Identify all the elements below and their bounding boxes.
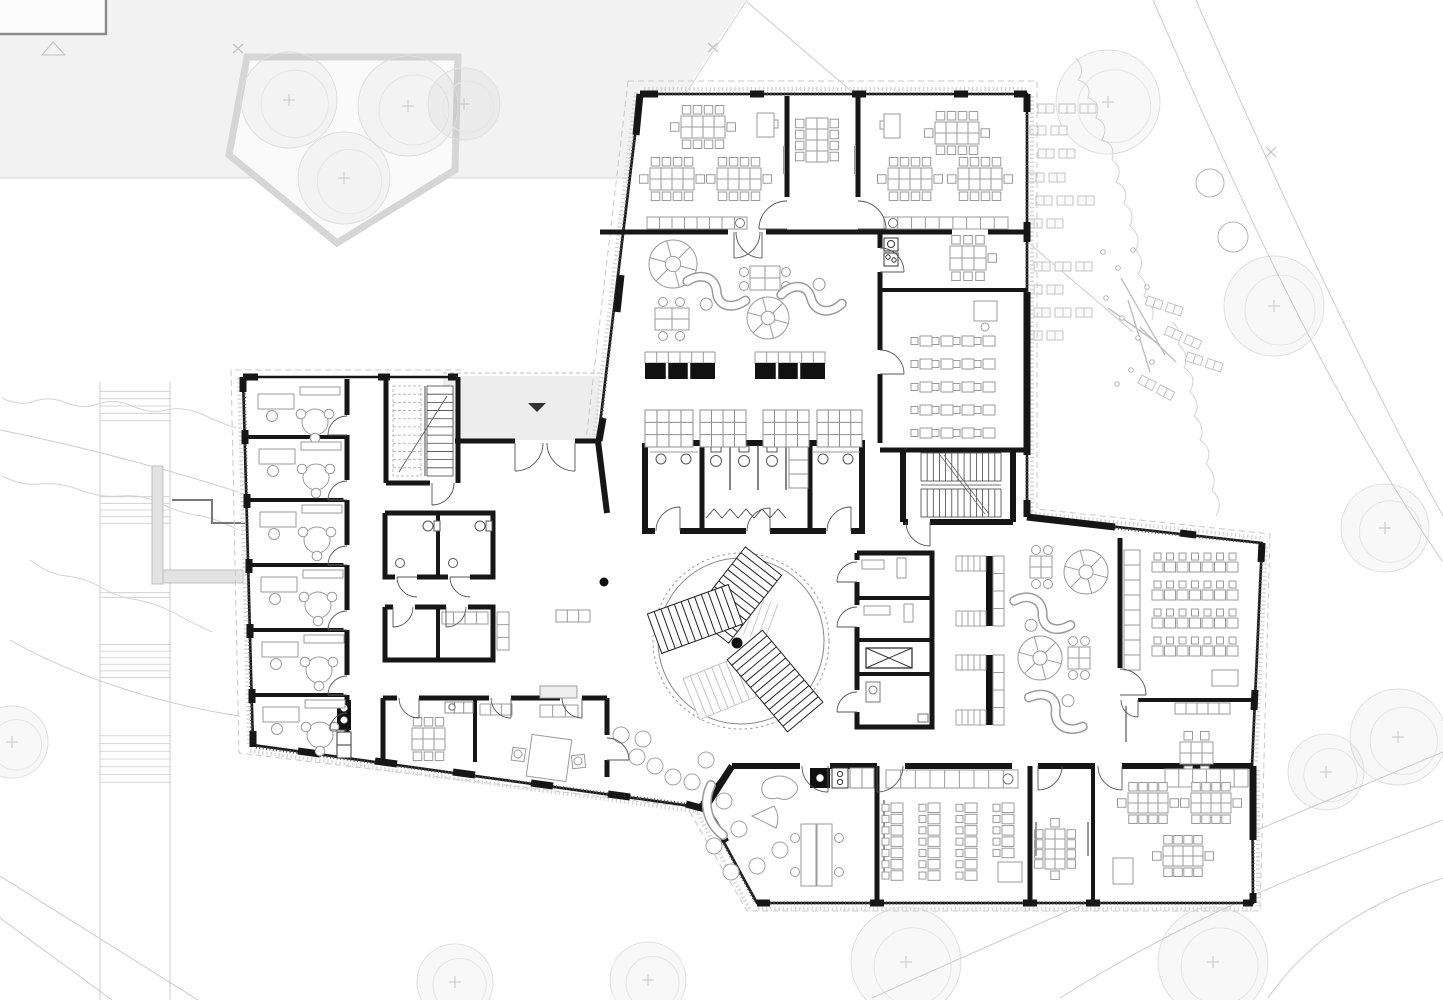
furniture-circ (1032, 580, 1041, 589)
kitchen-unit (337, 732, 351, 758)
furniture-circ (731, 821, 747, 837)
steps (100, 391, 170, 420)
wc-sink (396, 559, 405, 568)
shelf (956, 655, 986, 670)
stool (629, 749, 645, 765)
shelf-spine (986, 556, 993, 626)
chair (981, 323, 989, 331)
tree (1224, 256, 1324, 356)
site-circ (1116, 266, 1121, 271)
furniture-circ (676, 298, 685, 307)
furniture-rect (486, 521, 492, 531)
site-wall (152, 466, 163, 584)
furniture-circ (574, 757, 582, 765)
shelf-spine (986, 655, 993, 725)
tree (1158, 907, 1268, 1000)
round-group-table (747, 297, 789, 339)
floor-plan-svg (0, 0, 1443, 1000)
cabinet (540, 686, 577, 698)
round-group-table (1018, 636, 1062, 680)
fixtures-rect (862, 560, 884, 569)
furniture-circ (791, 868, 800, 877)
site-bench-row (1164, 326, 1201, 349)
square-table (1068, 647, 1090, 669)
road-edge (1196, 0, 1443, 516)
teacher-desk (998, 862, 1022, 882)
fixtures-circ (892, 258, 896, 262)
stair-flight (427, 386, 453, 476)
wc-toilet (475, 521, 485, 531)
fixtures-circ (341, 717, 347, 723)
tree (1288, 734, 1364, 810)
fixtures-circ (739, 456, 750, 467)
survey-cross (1266, 147, 1276, 157)
wc-sink (449, 559, 458, 568)
shelf (884, 217, 1008, 229)
furniture-circ (749, 858, 765, 874)
furniture-circ (740, 282, 749, 291)
pier (1180, 533, 1196, 535)
site-circ (1145, 285, 1150, 290)
tree (851, 907, 961, 1000)
vegetation-edge (1172, 322, 1219, 516)
tree (1341, 484, 1429, 572)
shelf (647, 217, 747, 229)
furniture-circ (514, 750, 522, 758)
fixtures-rect (904, 604, 913, 622)
site-wall (163, 570, 243, 583)
shelf (1124, 550, 1140, 670)
fixtures-circ (837, 779, 842, 784)
sink (1003, 774, 1013, 784)
fixtures-circ (843, 454, 853, 464)
furniture-circ (1069, 637, 1078, 646)
sideboard (755, 352, 825, 363)
teacher-chair (774, 120, 778, 128)
square-table (750, 266, 780, 290)
site-bench-row (1036, 196, 1094, 205)
furniture-circ (835, 868, 844, 877)
furniture-circ (1032, 546, 1041, 555)
furniture-circ (659, 332, 668, 341)
shelf (886, 770, 1018, 788)
fixtures-circ (817, 775, 823, 781)
fixtures-circ (818, 454, 828, 464)
square-table (655, 308, 689, 330)
fixtures-circ (449, 704, 455, 710)
sink (736, 219, 745, 228)
teacher-desk (757, 113, 774, 137)
entrance-canopy (443, 376, 600, 440)
site-circ (1131, 248, 1136, 253)
shelf (956, 710, 986, 725)
fixtures-rect (918, 714, 928, 722)
site-circ (1136, 336, 1141, 341)
site-circ (1120, 316, 1125, 321)
round-group-table (1064, 550, 1108, 594)
fixtures-rect (897, 558, 906, 578)
site-bench-row (1034, 262, 1092, 271)
site-bench-row (1138, 375, 1175, 400)
desk-column (993, 803, 1014, 858)
fixtures-circ (656, 454, 666, 464)
site-ln (0, 876, 198, 1000)
shelf (993, 556, 1004, 626)
site-bench-row (1145, 296, 1183, 316)
site-bench-row (1030, 126, 1067, 135)
meeting-table (412, 718, 445, 761)
fixtures-circ (886, 255, 890, 259)
site-bench-row (1185, 352, 1223, 372)
fixtures-circ (767, 456, 778, 467)
site-circ (1150, 360, 1155, 365)
bench (556, 610, 590, 622)
site-circ (1104, 296, 1109, 301)
pier (531, 783, 553, 786)
stool (665, 769, 681, 785)
furniture-circ (723, 864, 739, 880)
shelf (956, 611, 986, 626)
pier (636, 94, 640, 135)
furniture-circ (1081, 637, 1090, 646)
teacher-chair (880, 121, 884, 129)
steps (100, 593, 170, 598)
fixtures-circ (837, 771, 842, 776)
column (600, 578, 609, 587)
fixtures-circ (711, 456, 722, 467)
chair-row (1175, 703, 1230, 714)
teacher-desk (1113, 858, 1133, 884)
tree (417, 944, 493, 1000)
road-edge (1268, 878, 1443, 998)
stair-flight (921, 489, 1001, 517)
stair-column (732, 638, 743, 649)
tree (241, 52, 337, 148)
furniture-circ (740, 268, 749, 277)
lockers (817, 410, 862, 447)
furniture-circ (1081, 671, 1090, 680)
desk (801, 824, 816, 886)
teacher-desk (974, 301, 997, 321)
furniture-circ (1044, 546, 1053, 555)
pier (608, 794, 630, 797)
furniture-circ (716, 793, 732, 809)
desk (817, 824, 832, 886)
lockers (763, 410, 809, 447)
site-bench-row (1038, 104, 1096, 113)
sideboard (755, 363, 825, 379)
furniture-circ (782, 268, 791, 277)
sideboard (645, 352, 715, 363)
stool (698, 752, 714, 768)
shelf (956, 556, 986, 571)
shelf (497, 612, 509, 650)
shelf (850, 768, 874, 788)
furniture-circ (676, 332, 685, 341)
furniture-rect (434, 521, 440, 531)
stair-flight-dashed (393, 386, 421, 476)
adjacent-building (0, 0, 106, 34)
furniture-circ (706, 838, 722, 854)
tree (298, 132, 390, 224)
fixtures-circ (681, 454, 691, 464)
pier (599, 418, 603, 441)
lockers (645, 410, 693, 447)
play-circle (1196, 169, 1224, 197)
site-circ (1129, 368, 1134, 373)
floor-plan-canvas (0, 0, 1443, 1000)
pier (1261, 543, 1262, 562)
wc-toilet (423, 521, 433, 531)
steps (100, 736, 170, 783)
site-ln (0, 918, 112, 1000)
tree (0, 706, 48, 778)
stool (613, 727, 629, 743)
site-bench-row (1038, 149, 1075, 158)
site-circ (1101, 250, 1106, 255)
fixtures-rect (864, 606, 890, 615)
furniture-circ (791, 834, 800, 843)
pier (617, 275, 621, 312)
lockers (700, 410, 746, 447)
site-circ (1115, 382, 1120, 387)
pier (453, 772, 475, 775)
shelf (789, 446, 808, 488)
furniture-circ (1069, 671, 1078, 680)
stool (684, 774, 700, 790)
teacher-desk (1212, 670, 1238, 686)
pier (375, 761, 397, 764)
steps (100, 645, 170, 678)
sofa (526, 734, 571, 781)
fixtures-circ (869, 686, 877, 694)
sideboard (480, 704, 512, 715)
furniture-circ (1044, 580, 1053, 589)
square-table (1030, 556, 1052, 578)
shelf (993, 655, 1004, 725)
teacher-desk (884, 114, 900, 138)
stool (647, 758, 663, 774)
play-circle (1218, 222, 1248, 252)
fixtures-circ (888, 241, 895, 248)
furniture-circ (772, 842, 788, 858)
site-bench-row (1034, 308, 1092, 317)
tree (610, 942, 686, 1000)
sink (889, 219, 898, 228)
tree (1056, 50, 1160, 154)
furniture-circ (835, 834, 844, 843)
sideboard (645, 363, 715, 379)
site-path (0, 430, 238, 492)
stool (635, 731, 651, 747)
furniture-circ (659, 298, 668, 307)
tree (428, 68, 500, 140)
